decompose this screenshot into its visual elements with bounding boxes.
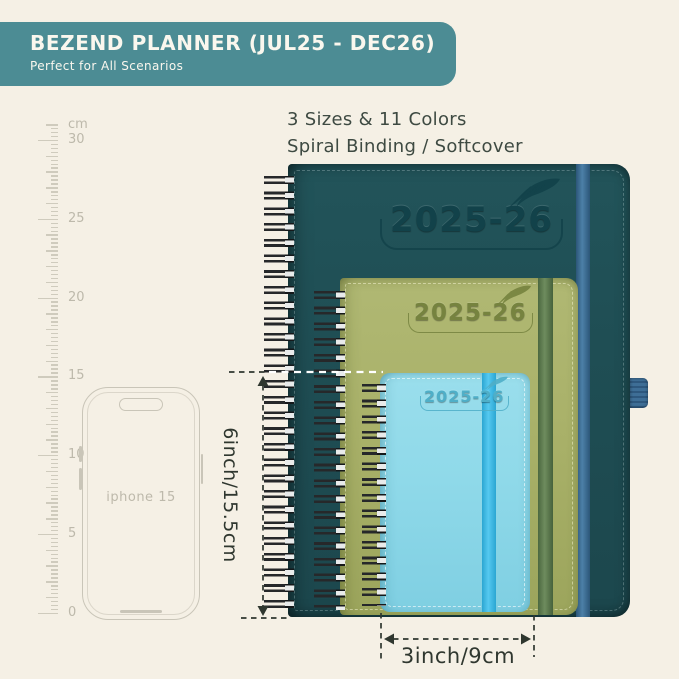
ruler-tick (51, 309, 58, 310)
ruler-label: 5 (68, 526, 76, 541)
ruler-tick (51, 459, 58, 460)
ruler-tick (51, 416, 58, 417)
ruler-tick (51, 483, 58, 484)
ruler-tick (51, 144, 58, 145)
ruler-tick (38, 455, 58, 456)
ruler-tick (51, 404, 58, 405)
ruler-tick (46, 250, 58, 251)
ruler-tick (51, 589, 58, 590)
ruler-tick (46, 565, 58, 566)
ruler-tick (51, 522, 58, 523)
logo-bracket (420, 396, 509, 411)
ruler-tick (51, 495, 58, 496)
ruler-tick (51, 546, 58, 547)
feather-icon (481, 375, 510, 391)
feature-line-sizes: 3 Sizes & 11 Colors (287, 106, 523, 133)
ruler-tick (51, 510, 58, 511)
ruler-tick (51, 353, 58, 354)
ruler-tick (51, 388, 58, 389)
ruler-tick (51, 246, 58, 247)
ruler-tick (51, 231, 58, 232)
ruler-tick (51, 372, 58, 373)
ruler-tick (51, 558, 58, 559)
ruler-tick (51, 585, 58, 586)
ruler-tick (46, 392, 58, 393)
phone-label: iphone 15 (83, 490, 199, 505)
ruler-tick (51, 278, 58, 279)
ruler-tick (46, 124, 58, 125)
feather-icon (504, 175, 565, 209)
notebook-small-logo: 2025-26 (424, 387, 504, 406)
ruler-tick (51, 428, 58, 429)
ruler-tick (46, 424, 58, 425)
ruler-tick (51, 368, 58, 369)
ruler-tick (51, 128, 58, 129)
width-dimension-label: 3inch/9cm (393, 644, 523, 668)
ruler-label: 30 (68, 132, 85, 147)
ruler-tick (51, 160, 58, 161)
ruler-tick (38, 219, 58, 220)
notebook-medium-elastic-band (538, 278, 553, 615)
ruler-tick (51, 337, 58, 338)
ruler-tick (51, 538, 58, 539)
ruler-tick (51, 333, 58, 334)
ruler-tick (51, 561, 58, 562)
ruler-tick (51, 463, 58, 464)
ruler-tick (51, 593, 58, 594)
ruler-tick (46, 156, 58, 157)
ruler-tick (51, 573, 58, 574)
ruler-tick (51, 207, 58, 208)
phone-side-button (79, 446, 82, 462)
product-features-text: 3 Sizes & 11 Colors Spiral Binding / Sof… (287, 106, 523, 160)
ruler-tick (51, 274, 58, 275)
ruler-tick (51, 195, 58, 196)
ruler-tick (46, 487, 58, 488)
ruler-tick (51, 199, 58, 200)
ruler-tick (51, 175, 58, 176)
ruler-tick (51, 262, 58, 263)
ruler-tick (51, 364, 58, 365)
ruler-label: 20 (68, 290, 85, 305)
notebook-medium-logo: 2025-26 (414, 300, 527, 326)
notebook-large-elastic-band (576, 164, 590, 617)
ruler-tick (46, 518, 58, 519)
ruler-tick (51, 498, 58, 499)
ruler-tick (51, 223, 58, 224)
logo-bracket (408, 313, 533, 333)
ruler-tick (51, 167, 58, 168)
ruler-tick (51, 270, 58, 271)
ruler-tick (51, 467, 58, 468)
ruler-tick (51, 294, 58, 295)
ruler-tick (46, 234, 58, 235)
ruler-tick (51, 380, 58, 381)
ruler-tick (51, 412, 58, 413)
ruler-tick (51, 238, 58, 239)
ruler-tick (51, 530, 58, 531)
ruler-tick (51, 569, 58, 570)
phone-outline: iphone 15 (82, 387, 200, 620)
ruler-tick (46, 329, 58, 330)
ruler-tick (51, 183, 58, 184)
ruler-tick (51, 420, 58, 421)
ruler-tick (51, 431, 58, 432)
ruler-tick (51, 242, 58, 243)
feature-line-binding: Spiral Binding / Softcover (287, 133, 523, 160)
ruler-tick (51, 506, 58, 507)
ruler-tick (51, 152, 58, 153)
ruler-tick (51, 384, 58, 385)
ruler-tick (51, 341, 58, 342)
product-infographic: BEZEND PLANNER (JUL25 - DEC26) Perfect f… (0, 0, 679, 679)
ruler-tick (51, 526, 58, 527)
spiral-clasps-small (377, 384, 386, 606)
ruler-tick (46, 597, 58, 598)
ruler-tick (51, 400, 58, 401)
phone-dynamic-island (119, 398, 163, 411)
ruler-tick (51, 148, 58, 149)
ruler-tick (46, 171, 58, 172)
ruler-tick (51, 258, 58, 259)
ruler-tick (51, 605, 58, 606)
ruler-tick (38, 534, 58, 535)
ruler-tick (51, 164, 58, 165)
ruler-tick (51, 479, 58, 480)
logo-bracket (380, 219, 562, 250)
ruler-tick (38, 613, 58, 614)
ruler-tick (51, 321, 58, 322)
ruler-tick (46, 361, 58, 362)
ruler-tick (51, 301, 58, 302)
height-dimension-label: 6inch/15.5cm (219, 427, 241, 563)
ruler-tick (51, 136, 58, 137)
ruler-tick (38, 298, 58, 299)
phone-side-button (79, 468, 82, 490)
ruler-tick (51, 475, 58, 476)
ruler-tick (46, 345, 58, 346)
ruler-tick (51, 542, 58, 543)
ruler-tick (51, 286, 58, 287)
ruler-tick (51, 305, 58, 306)
ruler-tick (38, 140, 58, 141)
ruler-tick (38, 376, 58, 377)
ruler-label: 25 (68, 211, 85, 226)
ruler-tick (51, 577, 58, 578)
ruler-tick (46, 581, 58, 582)
ruler-tick (51, 325, 58, 326)
pen-loop (630, 378, 648, 408)
ruler-tick (46, 266, 58, 267)
ruler-tick (51, 435, 58, 436)
ruler-tick (51, 396, 58, 397)
ruler-tick (46, 439, 58, 440)
ruler-label: 15 (68, 368, 85, 383)
ruler-label: 0 (68, 605, 76, 620)
ruler-tick (51, 451, 58, 452)
ruler-tick (51, 290, 58, 291)
feather-icon (493, 283, 534, 306)
ruler-tick (51, 601, 58, 602)
notebook-large-logo: 2025-26 (390, 200, 553, 240)
ruler-tick (51, 447, 58, 448)
notebook-small-cover: 2025-26 (380, 373, 530, 612)
ruler-tick (51, 132, 58, 133)
ruler-tick (51, 317, 58, 318)
ruler-tick (46, 502, 58, 503)
ruler-tick (46, 550, 58, 551)
ruler-tick (46, 313, 58, 314)
ruler-tick (51, 179, 58, 180)
ruler-tick (46, 471, 58, 472)
ruler-tick (51, 554, 58, 555)
ruler-tick (51, 357, 58, 358)
ruler-tick (46, 282, 58, 283)
ruler-tick (46, 187, 58, 188)
ruler-tick (51, 514, 58, 515)
ruler-label: cm (68, 117, 88, 132)
spiral-clasps-large (285, 176, 294, 612)
ruler-tick (51, 254, 58, 255)
ruler-tick (51, 491, 58, 492)
phone-side-button (201, 454, 204, 484)
ruler-tick (51, 443, 58, 444)
spiral-clasps-medium (336, 291, 345, 610)
ruler-tick (51, 191, 58, 192)
ruler-tick (46, 203, 58, 204)
phone-home-indicator (120, 610, 162, 613)
ruler-tick (51, 211, 58, 212)
ruler-tick (46, 408, 58, 409)
ruler-tick (51, 349, 58, 350)
ruler-tick (51, 215, 58, 216)
stitching (385, 378, 525, 607)
ruler-tick (51, 609, 58, 610)
ruler-tick (51, 227, 58, 228)
